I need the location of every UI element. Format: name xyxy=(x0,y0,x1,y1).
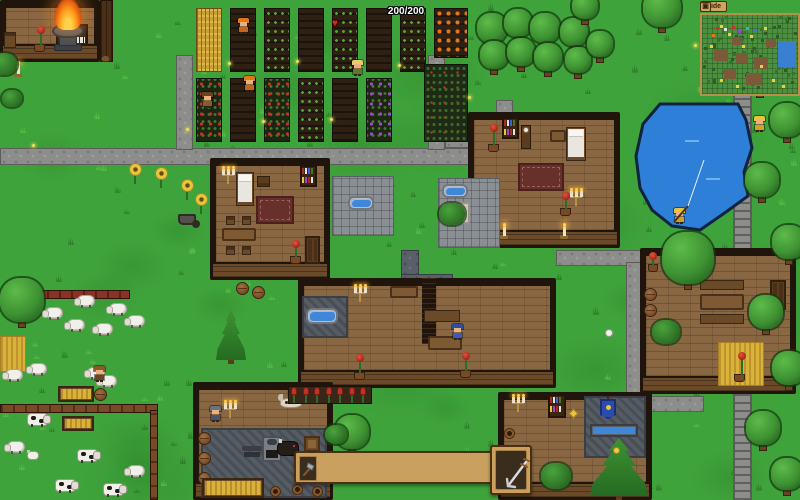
bench[interactable] xyxy=(700,280,744,290)
minimap-terrain xyxy=(704,47,707,50)
sheep-leg xyxy=(57,317,59,320)
sheep-head xyxy=(93,327,98,333)
plant-bloom xyxy=(37,26,45,34)
npc-leg xyxy=(454,338,457,340)
bush[interactable] xyxy=(541,463,571,489)
candelabra-stand xyxy=(517,404,519,412)
minimap-terrain xyxy=(729,61,732,64)
npc-leg xyxy=(244,32,247,34)
candle-stick xyxy=(512,397,515,403)
barrel-band xyxy=(200,438,209,440)
sheep-leg xyxy=(17,379,19,382)
cow-spot xyxy=(59,482,64,486)
candle-flame-icon xyxy=(232,166,235,169)
tree[interactable] xyxy=(772,225,800,259)
barrel-band xyxy=(646,294,655,296)
minimap-marker xyxy=(746,27,749,30)
minimap-marker xyxy=(754,29,757,32)
tree[interactable] xyxy=(587,31,613,57)
wood-wall xyxy=(100,0,113,62)
tulip-stem xyxy=(328,394,330,403)
tree[interactable] xyxy=(746,411,780,445)
rug-pattern xyxy=(522,167,560,187)
minimap-building xyxy=(736,53,748,63)
barrel-band xyxy=(200,458,209,460)
red-tulip xyxy=(349,387,355,395)
sheep-leg xyxy=(49,317,51,320)
tub-water xyxy=(309,311,335,321)
sparkle xyxy=(186,128,189,131)
banner-emblem xyxy=(606,405,611,410)
candle-stick xyxy=(575,191,578,197)
minimap-marker xyxy=(712,34,715,37)
hotbar xyxy=(294,451,494,484)
sheep-head xyxy=(65,323,70,329)
candle-flame-icon xyxy=(234,400,237,403)
hotbar-slot-axe[interactable] xyxy=(299,456,317,481)
minimap-terrain xyxy=(777,67,780,70)
candle-flame-icon xyxy=(512,394,515,397)
barrel-band xyxy=(238,288,247,290)
candle-flame-icon xyxy=(517,394,520,397)
minimap-marker xyxy=(720,25,723,28)
chick[interactable] xyxy=(614,448,619,453)
dog[interactable] xyxy=(28,452,38,459)
cow-spot xyxy=(31,416,36,420)
candle-flame-icon xyxy=(224,400,227,403)
minimap-terrain xyxy=(721,19,724,22)
cow-spot xyxy=(107,486,112,490)
npc-leg xyxy=(250,90,253,92)
cow-leg xyxy=(59,490,61,493)
minimap-header: Hide − + ▣ xyxy=(700,0,800,13)
book xyxy=(559,397,561,403)
cow-head xyxy=(94,452,100,459)
sheep-leg xyxy=(11,451,13,454)
plant-bloom xyxy=(738,352,746,360)
bush[interactable] xyxy=(652,320,680,344)
sunflower[interactable] xyxy=(156,168,167,179)
sheep-leg xyxy=(79,329,81,332)
minimap-terrain xyxy=(713,43,716,46)
cow-leg xyxy=(69,490,71,493)
sparkle xyxy=(262,120,265,123)
minimap-terrain xyxy=(713,81,716,84)
red-tulip xyxy=(337,387,343,395)
minimap-terrain xyxy=(704,60,707,63)
tree[interactable] xyxy=(565,47,591,73)
red-tulip xyxy=(291,387,297,395)
sparkle xyxy=(468,96,471,99)
candle-stick xyxy=(503,227,506,236)
sheep-leg xyxy=(131,325,133,328)
npc-leg xyxy=(216,420,219,422)
tree[interactable] xyxy=(662,232,714,284)
minimap-terrain xyxy=(751,50,754,53)
sheep-head xyxy=(27,367,32,373)
tree[interactable] xyxy=(477,13,507,43)
minimap-terrain xyxy=(707,80,710,83)
npc-leg xyxy=(204,106,207,108)
fire xyxy=(54,0,82,30)
sheep-leg xyxy=(103,385,105,388)
cow-spot xyxy=(81,452,86,456)
bed-pillow xyxy=(569,130,583,137)
minimap-terrain xyxy=(761,39,764,42)
hay-pile[interactable] xyxy=(0,336,26,372)
minimap-terrain xyxy=(776,35,779,38)
tree[interactable] xyxy=(643,0,681,27)
minimap[interactable]: Hide − + ▣ xyxy=(700,0,800,96)
minimap-terrain xyxy=(760,28,763,31)
minimap-unit-dot xyxy=(720,79,723,82)
crate[interactable] xyxy=(304,436,320,452)
barrel-band xyxy=(646,310,655,312)
candle-stick xyxy=(354,287,357,293)
cow-leg xyxy=(31,424,33,427)
ammo-panel[interactable] xyxy=(490,445,532,495)
sheep-leg xyxy=(71,329,73,332)
minimap-marker xyxy=(732,26,735,29)
minimap-building xyxy=(746,73,762,85)
tulip-stem xyxy=(362,394,364,403)
tulip-stem xyxy=(316,394,318,403)
trough-hay xyxy=(61,389,91,399)
candle-flame-icon xyxy=(227,166,230,169)
candle-stick xyxy=(229,403,232,409)
chair[interactable] xyxy=(4,32,16,48)
furnace-top xyxy=(267,439,277,445)
minimap-terrain xyxy=(719,37,722,40)
candle-flame-icon xyxy=(570,188,573,191)
minimap-terrain xyxy=(757,86,760,89)
minimap-building xyxy=(714,49,728,61)
sheep-leg xyxy=(19,451,21,454)
minimap-terrain xyxy=(778,25,781,28)
sheep-leg xyxy=(89,305,91,308)
minimap-terrain xyxy=(753,47,756,50)
chair[interactable] xyxy=(242,246,251,255)
npc-leg xyxy=(458,338,461,340)
pot-mouth xyxy=(295,487,300,492)
minimap-terrain xyxy=(751,38,754,41)
candle-stick xyxy=(359,287,362,293)
dresser[interactable] xyxy=(257,176,270,187)
sparkle xyxy=(330,118,333,121)
red-tulip xyxy=(303,387,309,395)
furnace-opening xyxy=(266,450,278,458)
candle-stick xyxy=(364,287,367,293)
barrel-band xyxy=(96,394,105,396)
minimap-marker xyxy=(724,28,727,31)
scene-layer xyxy=(0,0,800,500)
tree[interactable] xyxy=(480,41,508,69)
cow-leg xyxy=(91,460,93,463)
trough-hay xyxy=(65,419,91,428)
tree[interactable] xyxy=(749,295,783,329)
sheep-leg xyxy=(107,333,109,336)
minimap-terrain xyxy=(784,69,787,72)
tree[interactable] xyxy=(772,351,800,385)
npc-leg xyxy=(240,32,243,34)
minimap-unit-dot xyxy=(772,79,775,82)
tree[interactable] xyxy=(534,43,562,71)
tree[interactable] xyxy=(771,458,800,490)
npc-leg xyxy=(100,380,103,382)
red-tulip xyxy=(314,387,320,395)
candelabra-stand xyxy=(227,176,229,184)
sheep-head xyxy=(85,371,90,377)
sheep-leg xyxy=(81,305,83,308)
minimap-unit-dot xyxy=(750,35,753,38)
book xyxy=(559,406,561,412)
minimap-mode-button[interactable]: ▣ xyxy=(700,2,711,12)
npc-leg xyxy=(212,420,215,422)
candle-flame-icon xyxy=(522,394,525,397)
sheep-head xyxy=(43,311,48,317)
sheep-head xyxy=(5,445,10,451)
minimap-marker xyxy=(738,30,741,33)
sheep-leg xyxy=(121,313,123,316)
minimap-terrain xyxy=(743,31,746,34)
sparkle xyxy=(296,60,299,63)
bench[interactable] xyxy=(424,310,460,322)
sheep-leg xyxy=(139,475,141,478)
pot-mouth xyxy=(273,489,278,494)
wheel xyxy=(192,220,200,228)
minimap-building xyxy=(766,39,776,47)
minimap-terrain xyxy=(703,65,706,68)
sheep-leg xyxy=(113,313,115,316)
minimap-terrain xyxy=(775,70,778,73)
table[interactable] xyxy=(550,130,566,142)
bench[interactable] xyxy=(700,314,744,324)
pasture-fence[interactable] xyxy=(150,410,158,500)
tub-water xyxy=(351,199,371,207)
plant-bloom xyxy=(462,352,470,360)
sheep-leg xyxy=(111,385,113,388)
trough-water xyxy=(593,427,635,434)
candle-flame-icon xyxy=(575,188,578,191)
barrel-band xyxy=(254,292,263,294)
candle-stick xyxy=(580,191,583,197)
minimap-terrain xyxy=(791,81,794,84)
table[interactable] xyxy=(700,294,744,310)
minimap-terrain xyxy=(755,50,758,53)
pot-mouth xyxy=(315,489,320,494)
sheep-head xyxy=(125,469,130,475)
book xyxy=(311,177,313,183)
sheep-leg xyxy=(41,373,43,376)
bush[interactable] xyxy=(439,203,465,225)
plant-stem xyxy=(465,358,467,372)
rabbit[interactable] xyxy=(606,330,612,336)
candle-stick xyxy=(232,169,235,175)
sparkle xyxy=(32,144,35,147)
candelabra-stand xyxy=(229,410,231,418)
cow-leg xyxy=(41,424,43,427)
plant-stem xyxy=(40,32,42,46)
bush[interactable] xyxy=(0,53,17,75)
building-wall-face xyxy=(3,46,97,59)
candle-stick xyxy=(222,169,225,175)
tree[interactable] xyxy=(507,38,535,66)
tree[interactable] xyxy=(770,103,800,137)
bird[interactable] xyxy=(102,56,109,61)
candle-flame-icon xyxy=(222,166,225,169)
cow-head xyxy=(120,486,126,493)
tree[interactable] xyxy=(530,13,560,43)
plant-bloom xyxy=(490,124,498,132)
flower-pot[interactable] xyxy=(734,374,745,382)
minimap-terrain xyxy=(731,58,734,61)
bush[interactable] xyxy=(325,425,347,444)
cow-leg xyxy=(107,494,109,497)
minimap-building xyxy=(732,37,742,45)
cow-leg xyxy=(117,494,119,497)
sheep-leg xyxy=(99,333,101,336)
sunflower[interactable] xyxy=(196,194,207,205)
table[interactable] xyxy=(390,286,418,298)
plant-stem xyxy=(359,360,361,374)
candle-flame-icon xyxy=(229,400,232,403)
sparkle xyxy=(694,44,697,47)
anvil-top xyxy=(242,446,262,451)
npc-leg xyxy=(358,74,361,76)
candle-stick xyxy=(563,227,566,236)
minimap-terrain xyxy=(792,72,795,75)
minimap-marker xyxy=(716,27,719,30)
anvil[interactable] xyxy=(244,452,260,457)
tulip-stem xyxy=(351,394,353,403)
candle-stick xyxy=(570,191,573,197)
skull-horn xyxy=(278,394,283,401)
candle-stick xyxy=(17,65,20,74)
table[interactable] xyxy=(222,228,256,241)
building-wall-face xyxy=(301,372,553,385)
minimap-building xyxy=(724,69,736,79)
axe-icon xyxy=(300,461,316,477)
sunflower[interactable] xyxy=(130,164,141,175)
candle-stick xyxy=(517,397,520,403)
sheep-head xyxy=(125,319,130,325)
tulip-stem xyxy=(339,394,341,403)
wardrobe-door xyxy=(308,239,312,261)
minimap-unit-dot xyxy=(736,85,739,88)
plant-bloom xyxy=(562,192,570,200)
arrow-icon xyxy=(500,456,532,494)
sheep-head xyxy=(75,299,80,305)
candle-flame-icon xyxy=(580,188,583,191)
beast-eye xyxy=(293,445,295,447)
minimap-terrain xyxy=(788,17,791,20)
sheep-leg xyxy=(131,475,133,478)
candle-flame-icon xyxy=(359,284,362,287)
wardrobe-door xyxy=(314,239,318,261)
tree[interactable] xyxy=(572,0,598,19)
tree[interactable] xyxy=(745,163,779,197)
chair[interactable] xyxy=(226,216,235,225)
minimap-unit-dot xyxy=(764,27,767,30)
sheep-head xyxy=(107,307,112,313)
pine-tree[interactable] xyxy=(216,310,246,360)
book xyxy=(513,129,515,135)
tub-water xyxy=(445,187,465,195)
minimap-unit-dot xyxy=(742,45,745,48)
minimap-terrain xyxy=(725,16,728,19)
book xyxy=(311,168,313,174)
tulip-stem xyxy=(305,394,307,403)
plant-stem xyxy=(741,358,743,376)
sparkle xyxy=(228,62,231,65)
npc-leg xyxy=(756,130,759,132)
minimap-terrain xyxy=(715,18,718,21)
candle-flame-icon xyxy=(354,284,357,287)
pasture-fence[interactable] xyxy=(0,404,158,413)
minimap-unit-dot xyxy=(760,65,763,68)
minimap-terrain xyxy=(794,32,797,35)
chair[interactable] xyxy=(226,246,235,255)
bed-pillow xyxy=(239,175,251,182)
npc-leg xyxy=(354,74,357,76)
minimap-terrain xyxy=(764,32,767,35)
minimap-terrain xyxy=(779,16,782,19)
plant-bloom xyxy=(649,252,657,260)
candle-stick xyxy=(522,397,525,403)
minimap-terrain xyxy=(787,74,790,77)
minimap-terrain xyxy=(712,68,715,71)
cow-head xyxy=(44,416,50,423)
candle-stick xyxy=(224,403,227,409)
sheep-head xyxy=(3,373,8,379)
tulip-stem xyxy=(293,394,295,403)
minimap-map[interactable] xyxy=(700,13,800,96)
npc-leg xyxy=(760,130,763,132)
tree[interactable] xyxy=(504,9,532,37)
sheep-leg xyxy=(9,379,11,382)
npc-leg xyxy=(676,222,679,224)
tree[interactable] xyxy=(0,278,44,322)
sparkle xyxy=(398,64,401,67)
minimap-unit-dot xyxy=(710,45,713,48)
candle-stick xyxy=(234,403,237,409)
candelabra-stand xyxy=(359,294,361,302)
npc-leg xyxy=(680,222,683,224)
candle-flame-icon xyxy=(503,223,506,227)
sheep-leg xyxy=(139,325,141,328)
book xyxy=(513,120,515,126)
minimap-unit-dot xyxy=(728,33,731,36)
red-tulip xyxy=(360,387,366,395)
clock-face xyxy=(523,127,529,133)
cow-leg xyxy=(81,460,83,463)
candelabra-stand xyxy=(575,198,577,206)
sunflower[interactable] xyxy=(182,180,193,191)
plant-stem xyxy=(493,130,495,146)
candle-stick xyxy=(227,169,230,175)
npc-leg xyxy=(246,90,249,92)
dog-ear xyxy=(27,450,30,453)
beast-horn xyxy=(279,439,282,443)
game-viewport[interactable]: 200/200 ♥♥♥♥♥♥♥♥♥♥♥♥♥♥♥♥♥♥♥ Hide − + ▣ xyxy=(0,0,800,500)
trough-hay xyxy=(205,481,261,495)
plant-bloom xyxy=(292,240,300,248)
npc-leg xyxy=(208,106,211,108)
chair[interactable] xyxy=(242,216,251,225)
minimap-unit-dot xyxy=(782,85,785,88)
bush[interactable] xyxy=(2,90,22,107)
pot-mouth xyxy=(507,431,512,436)
